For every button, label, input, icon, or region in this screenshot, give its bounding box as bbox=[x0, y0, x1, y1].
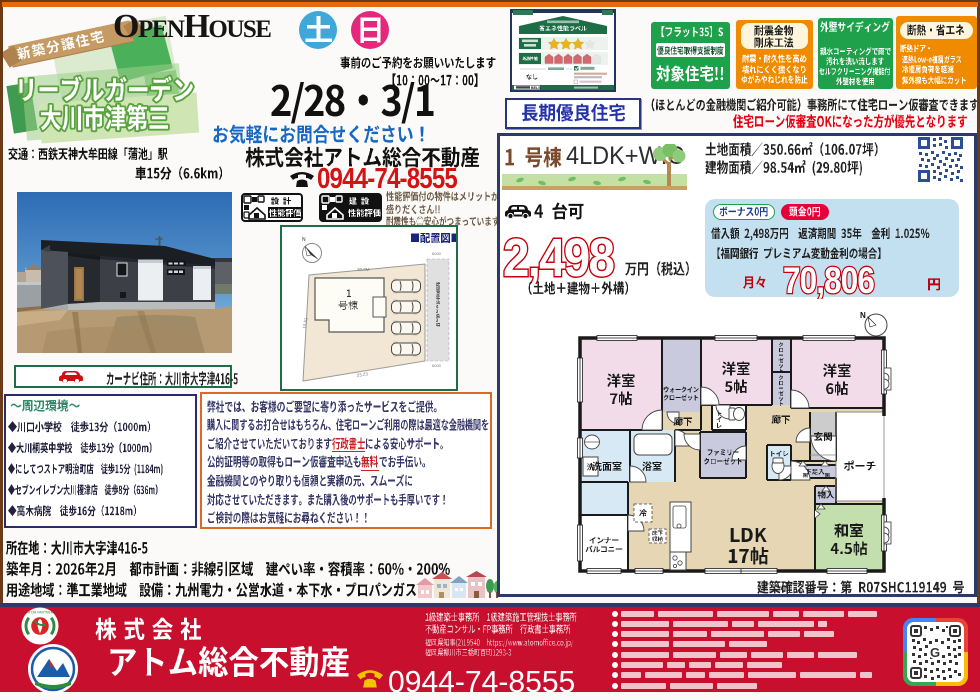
svg-text:6000: 6000 bbox=[432, 251, 442, 256]
svg-text:30.0M: 30.0M bbox=[357, 267, 370, 272]
svg-text:2,498: 2,498 bbox=[503, 228, 614, 284]
svg-text:BELS: BELS bbox=[531, 86, 541, 90]
svg-text:23.23: 23.23 bbox=[356, 371, 368, 378]
svg-text:N: N bbox=[302, 237, 306, 243]
svg-text:6000: 6000 bbox=[432, 363, 442, 368]
svg-text:G: G bbox=[930, 645, 940, 660]
svg-text:70,806: 70,806 bbox=[783, 261, 874, 299]
svg-text:N: N bbox=[860, 311, 866, 320]
svg-text:ATOM PARTNER: ATOM PARTNER bbox=[27, 610, 54, 614]
